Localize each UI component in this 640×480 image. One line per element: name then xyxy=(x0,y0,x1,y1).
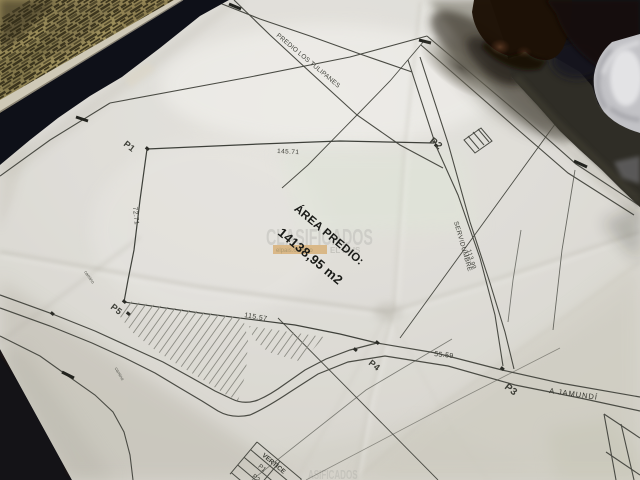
svg-text:145.71: 145.71 xyxy=(277,148,300,156)
svg-text:ASIFICADOS: ASIFICADOS xyxy=(308,468,358,480)
